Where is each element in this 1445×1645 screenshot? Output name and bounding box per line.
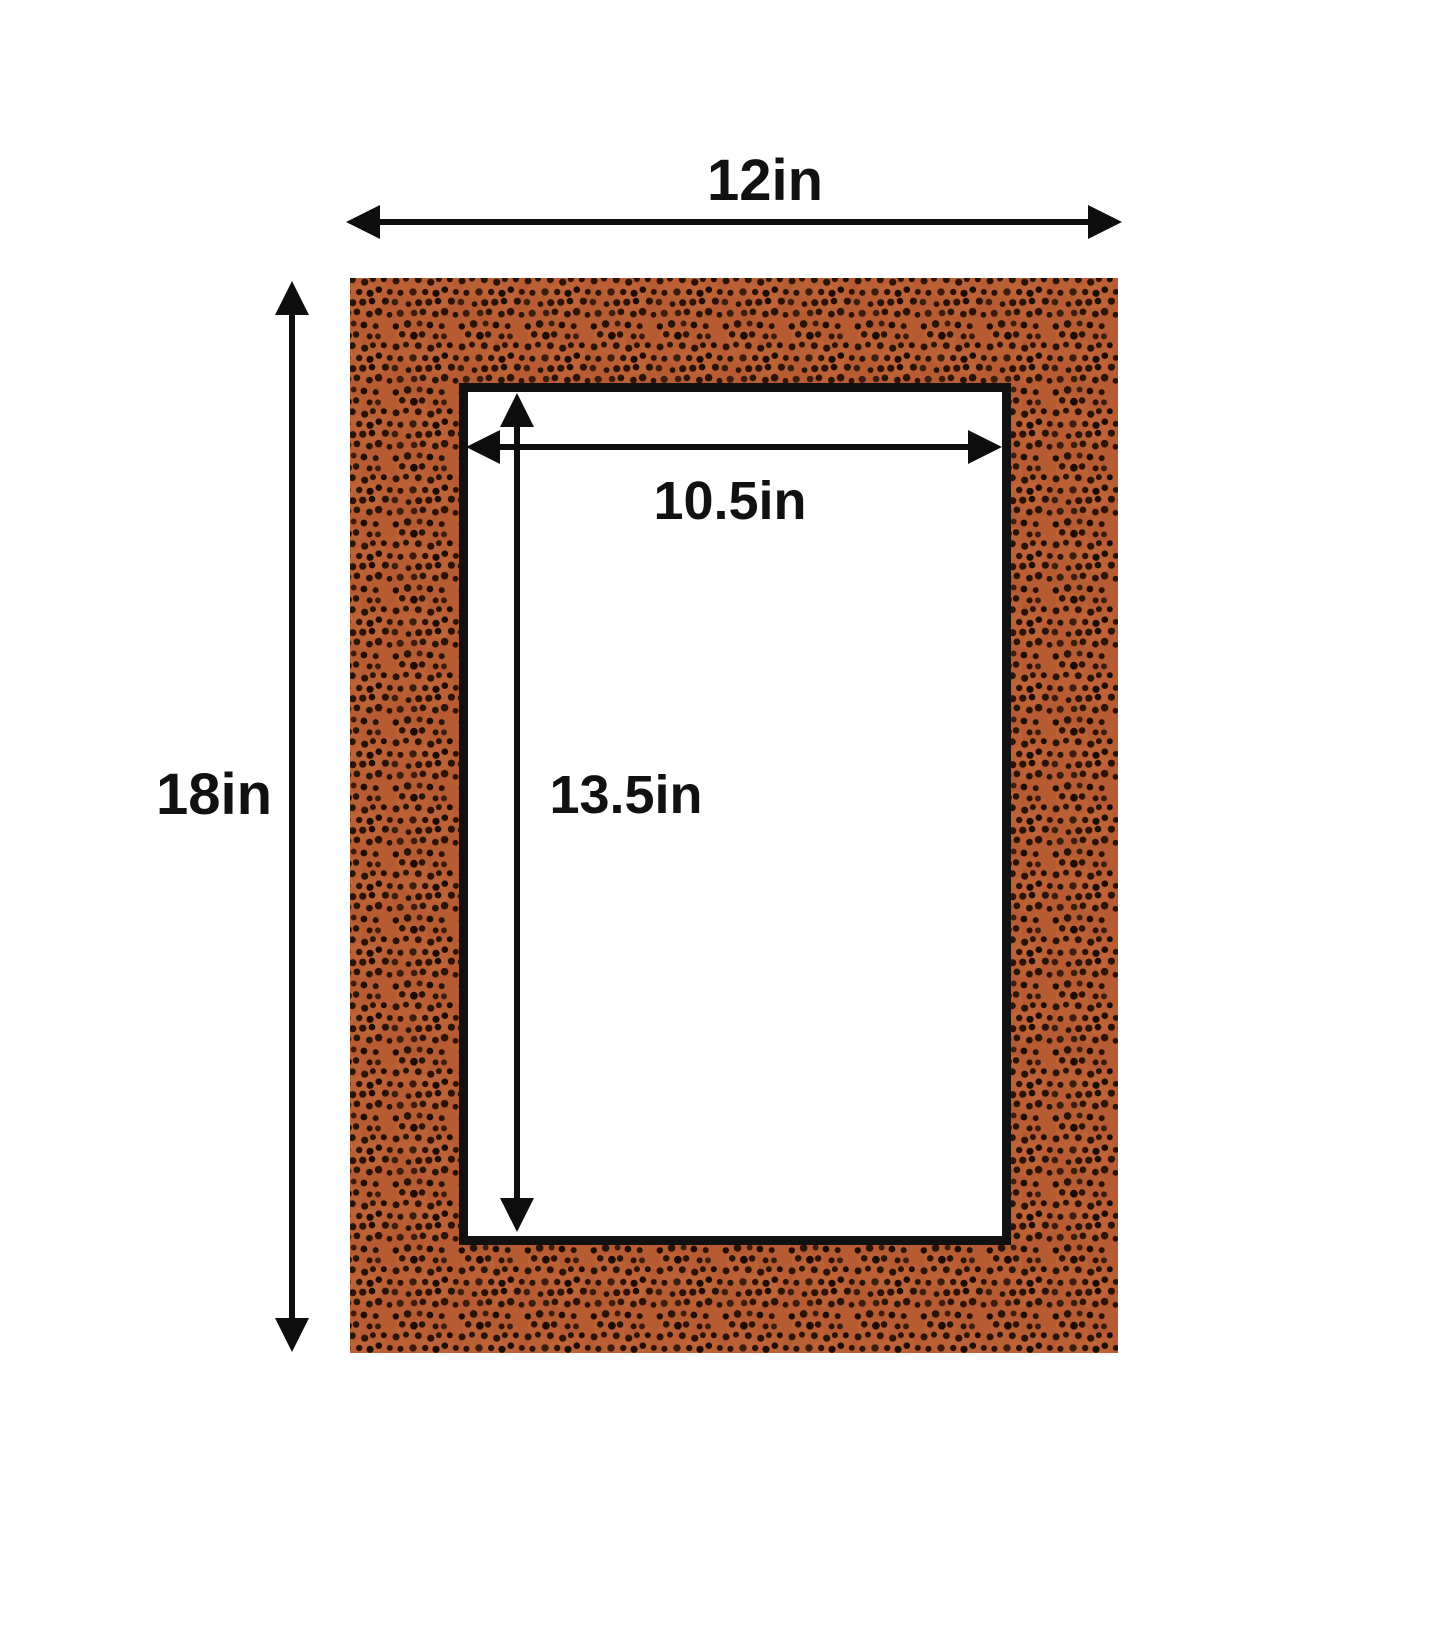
outer-width-arrowhead-left [346,205,380,239]
outer-height-arrowhead-top [275,281,309,315]
opening-width-label: 10.5in [653,474,806,528]
outer-height-label: 18in [156,766,272,824]
product-dimension-diagram: 12in 18in 10.5in 13.5in [0,0,1445,1645]
outer-height-arrow [275,281,309,1352]
outer-width-arrowhead-right [1088,205,1122,239]
opening-height-label: 13.5in [549,768,702,822]
outer-width-label: 12in [707,152,823,210]
outer-height-arrowhead-bottom [275,1318,309,1352]
